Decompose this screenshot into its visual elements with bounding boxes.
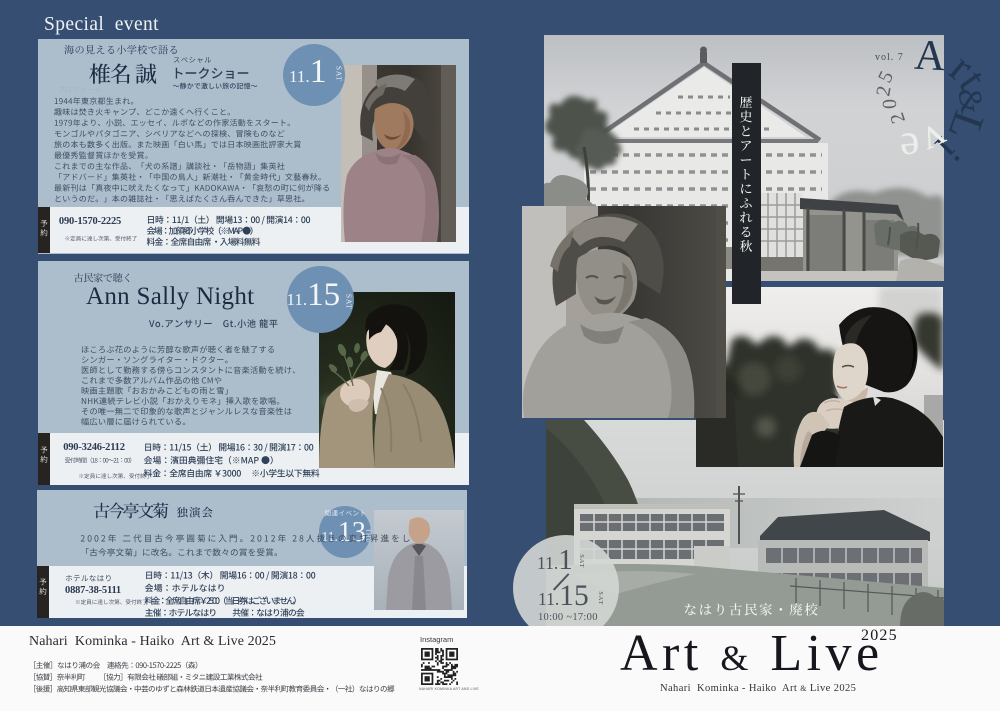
svg-text:vol. 7: vol. 7	[875, 52, 904, 63]
svg-text:0: 0	[879, 98, 901, 109]
svg-text:A: A	[913, 32, 946, 81]
svg-text:e: e	[898, 123, 922, 174]
svg-text:5: 5	[874, 68, 898, 87]
svg-text:2: 2	[886, 110, 910, 126]
